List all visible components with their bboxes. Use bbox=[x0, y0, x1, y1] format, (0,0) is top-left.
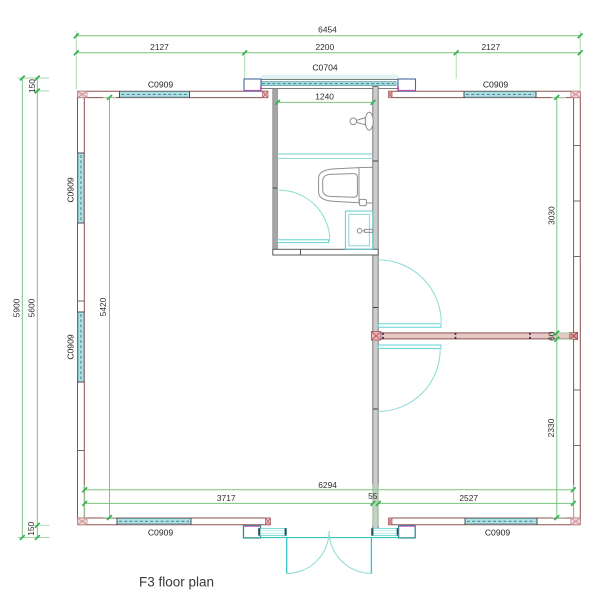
svg-text:2127: 2127 bbox=[481, 42, 500, 52]
svg-text:6294: 6294 bbox=[318, 480, 337, 490]
svg-text:2527: 2527 bbox=[459, 493, 478, 503]
svg-text:5600: 5600 bbox=[26, 298, 36, 317]
svg-text:C0909: C0909 bbox=[483, 80, 509, 90]
svg-text:3030: 3030 bbox=[546, 206, 556, 225]
svg-text:2200: 2200 bbox=[315, 42, 334, 52]
svg-text:C0909: C0909 bbox=[148, 528, 174, 538]
svg-text:F3 floor plan: F3 floor plan bbox=[139, 575, 214, 590]
svg-text:1240: 1240 bbox=[315, 92, 334, 102]
svg-text:5420: 5420 bbox=[98, 297, 108, 316]
svg-text:2127: 2127 bbox=[150, 42, 169, 52]
svg-text:3717: 3717 bbox=[217, 493, 236, 503]
svg-text:C0704: C0704 bbox=[312, 62, 338, 72]
svg-text:55: 55 bbox=[368, 491, 378, 501]
svg-text:5900: 5900 bbox=[12, 298, 22, 317]
svg-text:2330: 2330 bbox=[546, 418, 556, 437]
svg-text:C0909: C0909 bbox=[148, 80, 174, 90]
svg-text:C0909: C0909 bbox=[65, 334, 75, 360]
svg-text:150: 150 bbox=[27, 79, 37, 93]
svg-text:C0909: C0909 bbox=[485, 528, 511, 538]
svg-text:150: 150 bbox=[26, 521, 36, 535]
svg-text:60: 60 bbox=[546, 331, 556, 341]
svg-text:6454: 6454 bbox=[318, 25, 337, 35]
svg-text:C0909: C0909 bbox=[65, 177, 75, 203]
